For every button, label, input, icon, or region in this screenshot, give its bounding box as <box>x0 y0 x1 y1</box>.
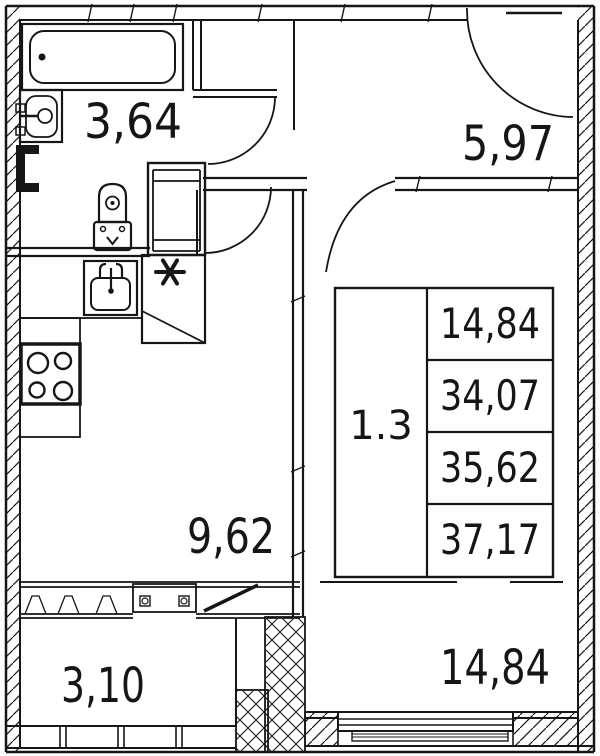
radiator <box>352 731 508 741</box>
entrance-door-arc <box>467 8 573 117</box>
basin-faucet <box>38 109 52 123</box>
bathroom-area-label: 3,64 <box>84 94 182 150</box>
pier-balcony-living <box>236 690 268 752</box>
window-slider <box>133 584 196 612</box>
wash-basin <box>16 90 62 142</box>
washer-bracket-marker <box>16 145 39 192</box>
bathroom-top-right-wall <box>193 90 277 97</box>
stamp-value-3: 35,62 <box>440 443 540 492</box>
balcony <box>6 617 305 752</box>
living-window-band <box>305 712 594 746</box>
stamp-value-2: 34,07 <box>440 371 540 420</box>
window-pier-right <box>513 712 578 746</box>
stove <box>21 344 80 404</box>
balcony-glazing-lines <box>6 726 236 748</box>
bathtub <box>22 24 183 90</box>
toilet-flush-mark <box>107 237 118 244</box>
kitchen-window-band <box>20 582 300 618</box>
floor-plan-drawing: 3,64 5,97 9,62 3,10 14,84 1.3 14,84 34,0… <box>0 0 600 756</box>
window-pier-left <box>305 712 338 746</box>
balcony-door-leaf <box>204 585 258 611</box>
glazing-mullions <box>60 726 182 748</box>
kitchen-living-wall <box>291 190 305 617</box>
vent-asterisk-icon <box>156 261 184 284</box>
balcony-area-label: 3,10 <box>61 658 145 714</box>
toilet <box>94 184 131 250</box>
right-wall-hatch <box>578 6 594 752</box>
stamp-value-1: 14,84 <box>440 299 540 348</box>
vent-shaft <box>142 255 205 343</box>
vent-diagonal <box>142 311 205 343</box>
hallway-area-label: 5,97 <box>462 116 554 172</box>
living-room-door-arc <box>326 181 395 272</box>
living-room-area-label: 14,84 <box>440 640 550 696</box>
pier-column <box>265 617 305 752</box>
hallway-bottom-wall <box>203 178 578 190</box>
sill-ticks <box>25 596 117 614</box>
kitchen-area-label: 9,62 <box>187 509 275 565</box>
living-window <box>338 712 513 731</box>
apartment-type-label: 1.3 <box>349 403 413 449</box>
bathroom-door-arc <box>208 97 275 164</box>
left-wall-hatch <box>6 6 20 752</box>
kitchen-door-arc <box>205 187 271 253</box>
stamp-value-4: 37,17 <box>440 515 540 564</box>
kitchen-sink <box>84 261 137 315</box>
tub-partition-wall <box>193 20 201 90</box>
bathtub-drain <box>39 54 46 61</box>
floor-plan-page: 3,64 5,97 9,62 3,10 14,84 1.3 14,84 34,0… <box>0 0 600 756</box>
